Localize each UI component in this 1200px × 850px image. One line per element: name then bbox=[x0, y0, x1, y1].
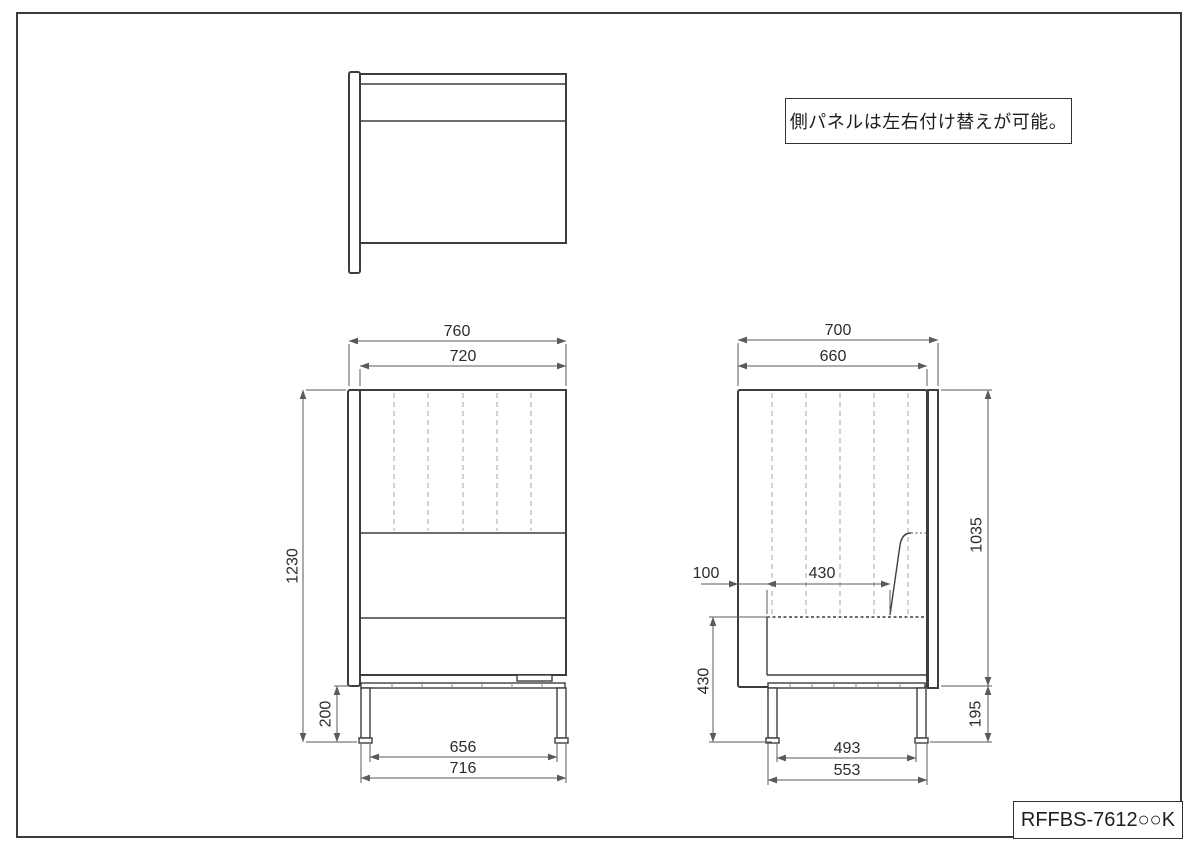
front-label-plate bbox=[517, 675, 552, 681]
top-view bbox=[349, 72, 566, 273]
side-left-leg bbox=[768, 688, 777, 738]
dim-front-leg-inner-span: 656 bbox=[450, 739, 477, 756]
dim-side-seat-height: 430 bbox=[696, 668, 713, 695]
front-view-body bbox=[348, 390, 568, 743]
top-view-body bbox=[360, 74, 566, 243]
dim-front-leg-height: 200 bbox=[318, 701, 335, 728]
note-box: 側パネルは左右付け替えが可能。 bbox=[785, 98, 1072, 144]
dim-side-back-offset: 100 bbox=[693, 565, 720, 582]
dim-front-total-height: 1230 bbox=[285, 548, 302, 584]
side-view: 700 660 1035 195 bbox=[693, 322, 992, 785]
dim-side-seat-depth: 430 bbox=[809, 565, 836, 582]
front-side-panel-edge bbox=[348, 390, 360, 686]
drawing-sheet: 760 720 1230 200 656 bbox=[0, 0, 1200, 850]
dim-side-leg-inner-span: 493 bbox=[834, 740, 861, 757]
dim-front-inner-width: 720 bbox=[450, 348, 477, 365]
side-leg-frame bbox=[768, 683, 925, 688]
side-back-panel-edge bbox=[928, 390, 938, 688]
side-right-foot bbox=[915, 738, 928, 743]
top-view-side-panel bbox=[349, 72, 360, 273]
front-left-foot bbox=[359, 738, 372, 743]
dim-front-outer-width: 760 bbox=[444, 323, 471, 340]
dim-side-inner-depth: 660 bbox=[820, 348, 847, 365]
front-right-leg bbox=[557, 688, 566, 738]
dim-front-leg-outer-span: 716 bbox=[450, 760, 477, 777]
dim-side-leg-outer-span: 553 bbox=[834, 762, 861, 779]
title-block: RFFBS-7612○○K bbox=[1013, 801, 1183, 839]
note-text: 側パネルは左右付け替えが可能。 bbox=[790, 108, 1068, 134]
side-view-body bbox=[738, 390, 938, 743]
dim-side-panel-height: 1035 bbox=[969, 517, 986, 553]
part-number: RFFBS-7612○○K bbox=[1021, 809, 1175, 832]
front-right-foot bbox=[555, 738, 568, 743]
side-right-leg bbox=[917, 688, 926, 738]
dim-side-leg-height: 195 bbox=[968, 701, 985, 728]
front-view: 760 720 1230 200 656 bbox=[285, 323, 569, 783]
dim-side-outer-depth: 700 bbox=[825, 322, 852, 339]
front-left-leg bbox=[361, 688, 370, 738]
